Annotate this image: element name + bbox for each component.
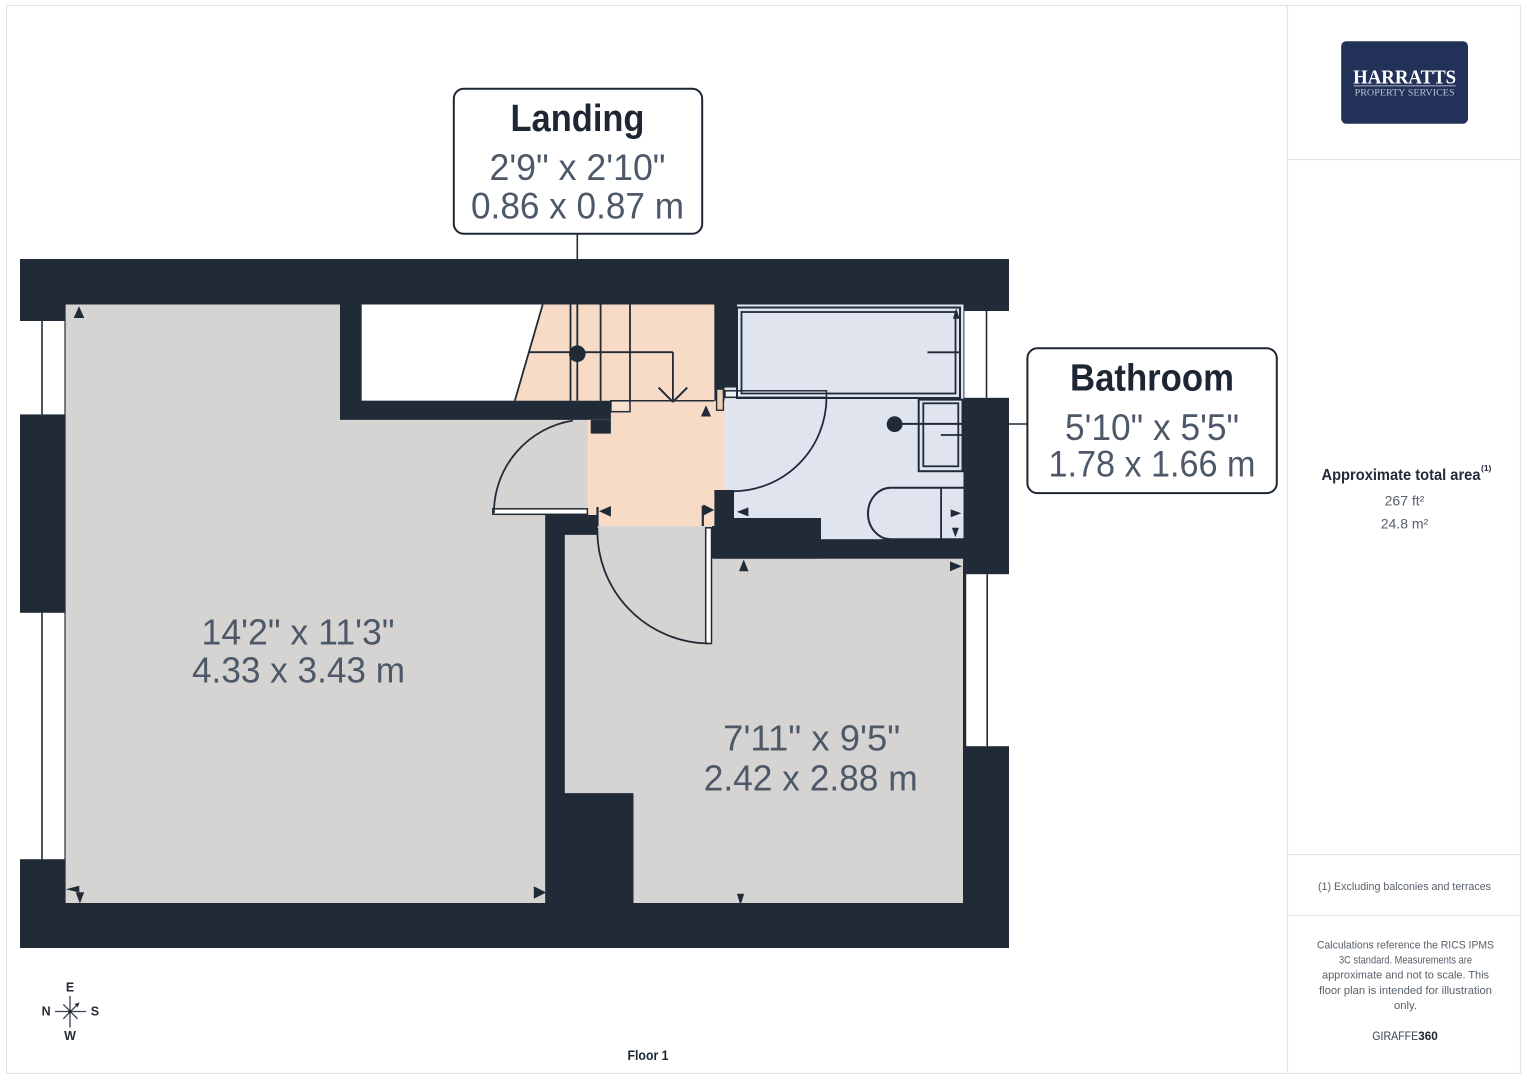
svg-text:Landing: Landing bbox=[511, 98, 645, 140]
svg-text:floor plan is intended for ill: floor plan is intended for illustration bbox=[1319, 985, 1492, 997]
svg-text:3C standard. Measurements are: 3C standard. Measurements are bbox=[1339, 955, 1472, 967]
svg-text:E: E bbox=[66, 981, 74, 995]
svg-text:1.78 x 1.66 m: 1.78 x 1.66 m bbox=[1049, 444, 1256, 485]
svg-text:Calculations reference the RIC: Calculations reference the RICS IPMS bbox=[1317, 940, 1494, 952]
svg-text:GIRAFFE360: GIRAFFE360 bbox=[1372, 1029, 1438, 1043]
svg-text:2'9" x 2'10": 2'9" x 2'10" bbox=[490, 147, 666, 188]
svg-text:14'2" x 11'3": 14'2" x 11'3" bbox=[202, 611, 395, 652]
svg-text:5'10" x 5'5": 5'10" x 5'5" bbox=[1065, 407, 1239, 448]
svg-text:(1): (1) bbox=[1481, 463, 1492, 473]
svg-text:PROPERTY SERVICES: PROPERTY SERVICES bbox=[1355, 89, 1455, 99]
svg-text:0.86 x 0.87 m: 0.86 x 0.87 m bbox=[471, 185, 684, 226]
svg-text:W: W bbox=[64, 1029, 76, 1043]
svg-text:(1) Excluding balconies and te: (1) Excluding balconies and terraces bbox=[1318, 881, 1491, 893]
svg-text:only.: only. bbox=[1394, 1000, 1417, 1012]
svg-text:S: S bbox=[91, 1005, 99, 1019]
svg-text:Approximate total area: Approximate total area bbox=[1322, 467, 1481, 484]
svg-text:7'11" x 9'5": 7'11" x 9'5" bbox=[723, 718, 900, 759]
svg-text:HARRATTS: HARRATTS bbox=[1353, 68, 1456, 89]
svg-text:approximate and not to scale.: approximate and not to scale. This bbox=[1322, 970, 1489, 982]
svg-text:Floor 1: Floor 1 bbox=[628, 1047, 669, 1063]
svg-text:N: N bbox=[42, 1005, 51, 1019]
svg-text:4.33 x 3.43 m: 4.33 x 3.43 m bbox=[192, 650, 405, 691]
svg-text:Bathroom: Bathroom bbox=[1070, 358, 1234, 400]
svg-text:2.42 x 2.88 m: 2.42 x 2.88 m bbox=[704, 757, 918, 798]
svg-text:267 ft²: 267 ft² bbox=[1385, 492, 1425, 508]
svg-text:24.8 m²: 24.8 m² bbox=[1381, 516, 1429, 532]
